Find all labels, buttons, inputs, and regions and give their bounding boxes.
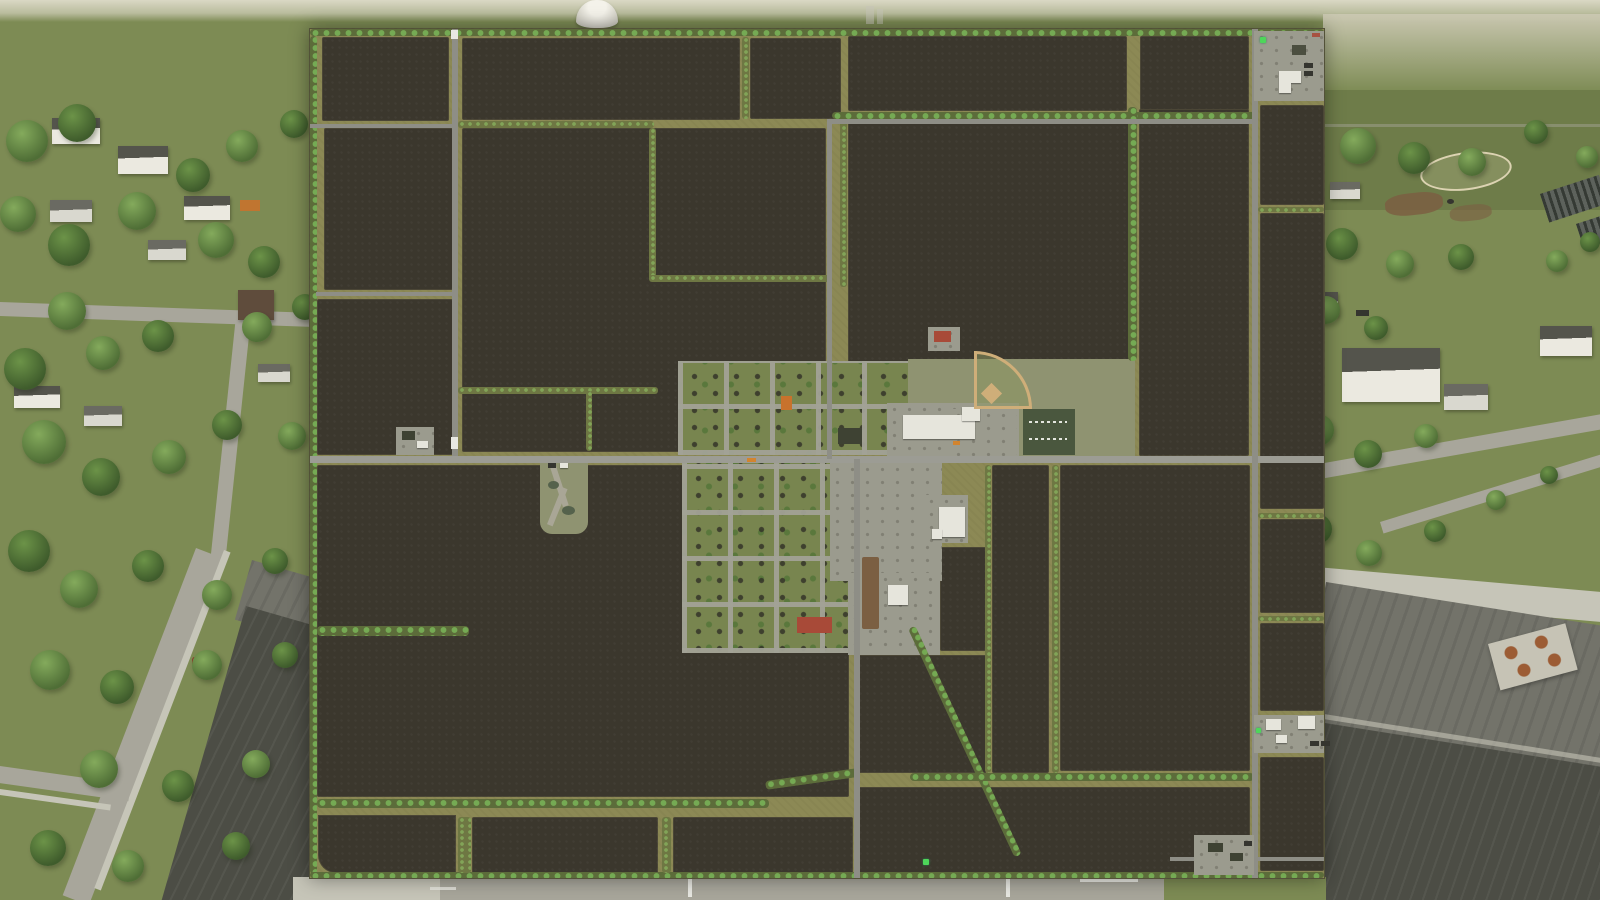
lane-line — [430, 887, 456, 890]
road-main-street — [310, 456, 1324, 463]
tree — [1524, 120, 1548, 144]
lane-line — [1080, 879, 1138, 882]
tree — [1386, 250, 1414, 278]
field — [940, 547, 986, 651]
tree — [118, 192, 156, 230]
field — [1260, 105, 1324, 205]
farm-building — [1279, 83, 1291, 93]
car — [1304, 71, 1313, 76]
field — [324, 128, 453, 290]
hedge — [458, 817, 471, 873]
field — [322, 37, 449, 121]
road-town-south — [854, 459, 860, 878]
tree — [4, 348, 46, 390]
house — [1342, 348, 1440, 402]
road-marker — [451, 30, 458, 39]
house — [84, 406, 122, 426]
tree — [1486, 490, 1506, 510]
tree — [8, 530, 50, 572]
farm-building — [417, 441, 428, 448]
tree — [30, 830, 66, 866]
school-building-wing — [962, 407, 980, 421]
field — [848, 36, 1127, 111]
shed — [258, 364, 290, 382]
tree — [226, 130, 258, 162]
field — [472, 817, 658, 874]
car — [548, 463, 556, 468]
field — [1260, 757, 1324, 871]
playground — [240, 200, 260, 211]
hedge-left — [310, 36, 317, 874]
field — [462, 38, 740, 120]
tree — [100, 670, 134, 704]
farm-building — [1266, 719, 1281, 730]
field — [750, 38, 841, 119]
town-grid-north — [678, 361, 908, 455]
tree — [198, 222, 234, 258]
tree — [82, 458, 120, 496]
tree — [30, 650, 70, 690]
tree — [1458, 148, 1486, 176]
tree — [176, 158, 210, 192]
field — [1260, 623, 1324, 711]
vehicle — [747, 458, 756, 462]
tree — [48, 224, 90, 266]
hedge — [1258, 513, 1324, 518]
field — [318, 815, 456, 873]
tree — [262, 548, 288, 574]
house — [1444, 384, 1488, 410]
tree — [278, 422, 306, 450]
house — [148, 240, 186, 260]
car — [1356, 310, 1369, 316]
distant-structure — [866, 6, 874, 24]
road — [210, 316, 251, 564]
tree — [1540, 466, 1558, 484]
tree — [1448, 244, 1474, 270]
football-field — [1023, 409, 1075, 455]
treeline — [1128, 107, 1137, 361]
cow — [1447, 199, 1454, 204]
farm-building — [1298, 716, 1315, 729]
field — [1260, 213, 1324, 509]
farm-building — [1279, 71, 1301, 83]
red-house — [934, 331, 951, 342]
tree — [242, 750, 270, 778]
tree — [272, 642, 298, 668]
shed — [1330, 182, 1360, 199]
grain-tank-wing — [932, 529, 942, 539]
tree — [1354, 440, 1382, 468]
farm-building — [1230, 853, 1243, 861]
road-north-south-west — [452, 29, 458, 461]
red-roof-building — [797, 617, 832, 633]
farm-building — [402, 431, 415, 440]
pond — [562, 506, 575, 515]
field — [1139, 109, 1249, 456]
tree — [1398, 142, 1430, 174]
tree — [192, 650, 222, 680]
road — [310, 124, 453, 128]
tree — [222, 832, 250, 860]
treeline — [910, 773, 1254, 781]
hedge — [458, 121, 654, 128]
tree — [1364, 316, 1388, 340]
hedge — [742, 37, 749, 119]
pond — [548, 481, 559, 489]
hedge — [649, 128, 656, 280]
hedge — [1258, 207, 1324, 212]
vehicle — [560, 463, 568, 468]
car — [1244, 841, 1252, 846]
field — [673, 817, 853, 874]
grain-tank — [939, 507, 965, 537]
red-object — [1312, 33, 1320, 37]
hedge — [1052, 465, 1059, 773]
tree — [58, 104, 96, 142]
lane-line — [1006, 877, 1010, 897]
map-marker — [923, 859, 929, 865]
field — [992, 465, 1049, 773]
hedge — [649, 275, 831, 282]
hedge — [662, 817, 671, 873]
tree — [202, 580, 232, 610]
map-marker — [1256, 728, 1261, 733]
orange-building — [781, 396, 792, 410]
hedge — [840, 119, 847, 287]
tree — [60, 570, 98, 608]
tree — [1340, 128, 1376, 164]
tree — [1424, 520, 1446, 542]
field — [1140, 36, 1249, 110]
field-edge-line — [1323, 124, 1600, 127]
horizon-right — [1323, 14, 1600, 92]
road — [827, 119, 832, 459]
field — [1260, 519, 1324, 613]
farm-building — [1276, 735, 1287, 743]
tree — [112, 850, 144, 882]
farm-map-overlay[interactable] — [309, 28, 1325, 879]
tree — [142, 320, 174, 352]
tree — [132, 550, 164, 582]
tree — [1546, 250, 1568, 272]
hedge — [1258, 616, 1324, 621]
tree — [152, 440, 186, 474]
field — [1060, 465, 1250, 771]
warehouse — [888, 585, 908, 605]
house — [184, 196, 230, 220]
car — [1304, 63, 1313, 68]
map-marker — [1260, 37, 1266, 43]
tree — [48, 292, 86, 330]
road-marker — [451, 437, 458, 449]
tree — [1414, 424, 1438, 448]
treeline — [317, 799, 769, 808]
farm-building — [1292, 45, 1306, 55]
field — [848, 117, 1129, 365]
tree — [1326, 228, 1358, 260]
tree — [1576, 146, 1598, 168]
house — [118, 146, 168, 174]
dirt-lot — [862, 557, 879, 629]
house — [1540, 326, 1592, 356]
tree — [248, 246, 280, 278]
tree — [0, 196, 36, 232]
distant-structure — [877, 9, 883, 24]
tree — [212, 410, 242, 440]
lane-line — [688, 877, 692, 897]
game-viewport — [0, 0, 1600, 900]
tree — [1580, 232, 1600, 252]
car — [1310, 741, 1319, 746]
house — [50, 200, 92, 222]
treeline — [832, 112, 1257, 119]
hedge — [586, 391, 592, 451]
concrete-pad — [293, 877, 443, 900]
road — [440, 877, 1164, 900]
tree — [6, 120, 48, 162]
tree — [22, 420, 66, 464]
tree — [280, 110, 308, 138]
machine-shed — [838, 428, 862, 444]
farm-building — [1208, 843, 1223, 852]
car — [1321, 741, 1330, 746]
road — [316, 292, 453, 296]
treeline — [317, 626, 469, 636]
tree — [80, 750, 118, 788]
road — [827, 119, 1257, 124]
hedge — [458, 387, 658, 394]
hedge — [985, 465, 991, 773]
tree — [242, 312, 272, 342]
tree — [86, 336, 120, 370]
tree — [162, 770, 194, 802]
vehicle — [953, 441, 960, 445]
tree — [1356, 540, 1382, 566]
grass-verge — [1164, 877, 1326, 900]
hedge-top — [310, 29, 1324, 36]
